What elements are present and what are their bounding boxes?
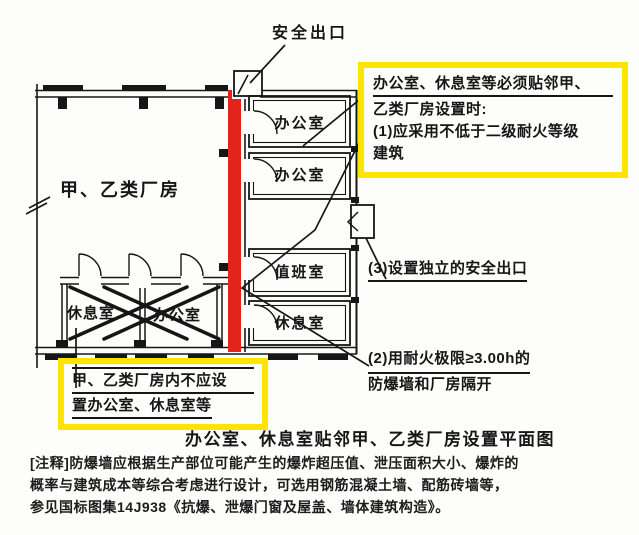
requirement-callout-box: 办公室、休息室等必须贴邻甲、 乙类厂房设置时: (1)应采用不低于二级耐火等级 … bbox=[358, 62, 628, 178]
crossed-rooms-doors bbox=[79, 254, 203, 288]
explosion-proof-wall bbox=[228, 90, 241, 352]
side-exit-door bbox=[348, 205, 374, 238]
prohibition-callout-box: 甲、乙类厂房内不应设 置办公室、休息室等 bbox=[58, 358, 268, 430]
notes-line-2: 概率与建筑成本等综合考虑进行设计，可选用钢筋混凝土墙、配筋砖墙等， bbox=[30, 474, 634, 496]
annex-room-label-rest: 休息室 bbox=[250, 312, 350, 333]
requirement-line-2: 乙类厂房设置时: bbox=[373, 99, 613, 121]
crossed-room-label-office: 办公室 bbox=[153, 304, 201, 325]
safety-exit-label: 安全出口 bbox=[272, 19, 348, 43]
firewall-line-1: (2)用耐火极限≥3.00h的 bbox=[368, 348, 530, 374]
notes-paragraph: [注释]防爆墙应根据生产部位可能产生的爆炸超压值、泄压面积大小、爆炸的 概率与建… bbox=[30, 452, 634, 518]
independent-exit-text: (3)设置独立的安全出口 bbox=[368, 257, 527, 282]
crossed-rooms-feet bbox=[56, 340, 223, 347]
annex-room-label-office-1: 办公室 bbox=[250, 112, 350, 133]
requirement-line-4: 建筑 bbox=[373, 143, 613, 165]
diagram-caption: 办公室、休息室贴邻甲、乙类厂房设置平面图 bbox=[110, 425, 630, 450]
firewall-callout: (2)用耐火极限≥3.00h的 防爆墙和厂房隔开 bbox=[368, 348, 530, 396]
notes-line-3: 参见国标图集14J938《抗爆、泄爆门窗及屋盖、墙体建筑构造》。 bbox=[30, 496, 634, 518]
factory-area-label: 甲、乙类厂房 bbox=[60, 176, 180, 202]
firewall-line-2: 防爆墙和厂房隔开 bbox=[368, 374, 530, 396]
crossed-room-label-rest: 休息室 bbox=[67, 302, 115, 323]
annex-room-label-duty: 值班室 bbox=[250, 261, 350, 282]
prohibition-line-2: 置办公室、休息室等 bbox=[72, 394, 212, 419]
requirement-line-3: (1)应采用不低于二级耐火等级 bbox=[373, 121, 613, 143]
annex-room-label-office-2: 办公室 bbox=[250, 164, 350, 185]
requirement-line-1: 办公室、休息室等必须贴邻甲、 bbox=[373, 73, 613, 97]
independent-exit-callout: (3)设置独立的安全出口 bbox=[368, 257, 527, 282]
prohibition-line-1: 甲、乙类厂房内不应设 bbox=[72, 369, 254, 394]
diagram-canvas: 安全出口 甲、乙类厂房 办公室 办公室 值班室 休息室 休息室 办公室 办公室、… bbox=[0, 0, 639, 535]
notes-line-1: [注释]防爆墙应根据生产部位可能产生的爆炸超压值、泄压面积大小、爆炸的 bbox=[30, 452, 634, 474]
